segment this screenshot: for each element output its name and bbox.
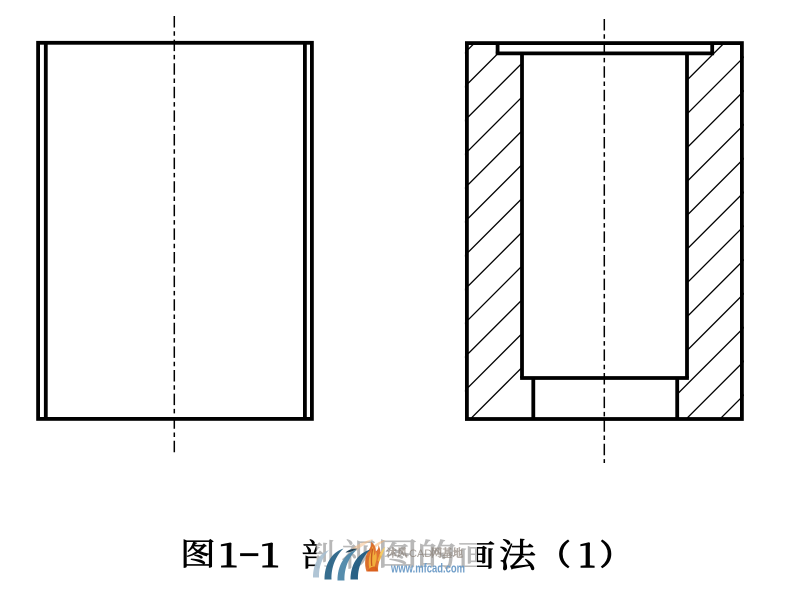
svg-text:CAD: CAD	[409, 548, 432, 560]
svg-text:www.mfcad.com: www.mfcad.com	[390, 562, 465, 576]
